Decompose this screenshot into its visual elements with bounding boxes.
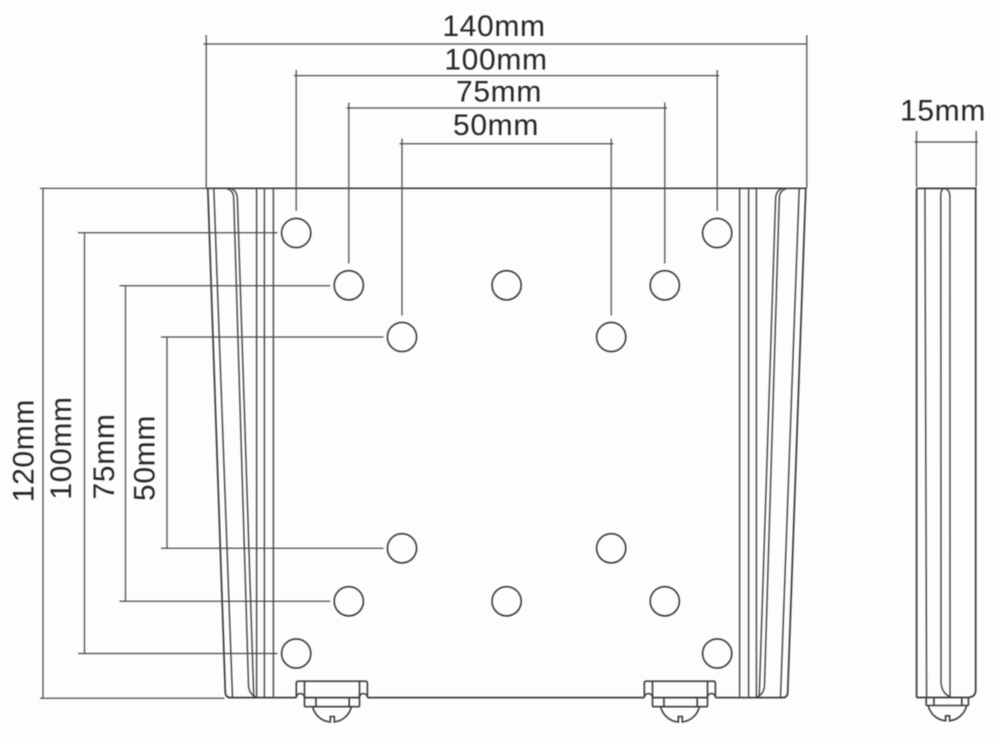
svg-text:140mm: 140mm — [442, 10, 545, 43]
svg-text:100mm: 100mm — [45, 396, 78, 499]
svg-text:100mm: 100mm — [444, 44, 547, 77]
svg-text:75mm: 75mm — [456, 75, 542, 108]
svg-text:15mm: 15mm — [900, 95, 986, 128]
svg-text:120mm: 120mm — [8, 399, 41, 502]
svg-text:50mm: 50mm — [129, 415, 162, 501]
svg-text:50mm: 50mm — [453, 109, 539, 142]
svg-text:75mm: 75mm — [88, 414, 121, 500]
